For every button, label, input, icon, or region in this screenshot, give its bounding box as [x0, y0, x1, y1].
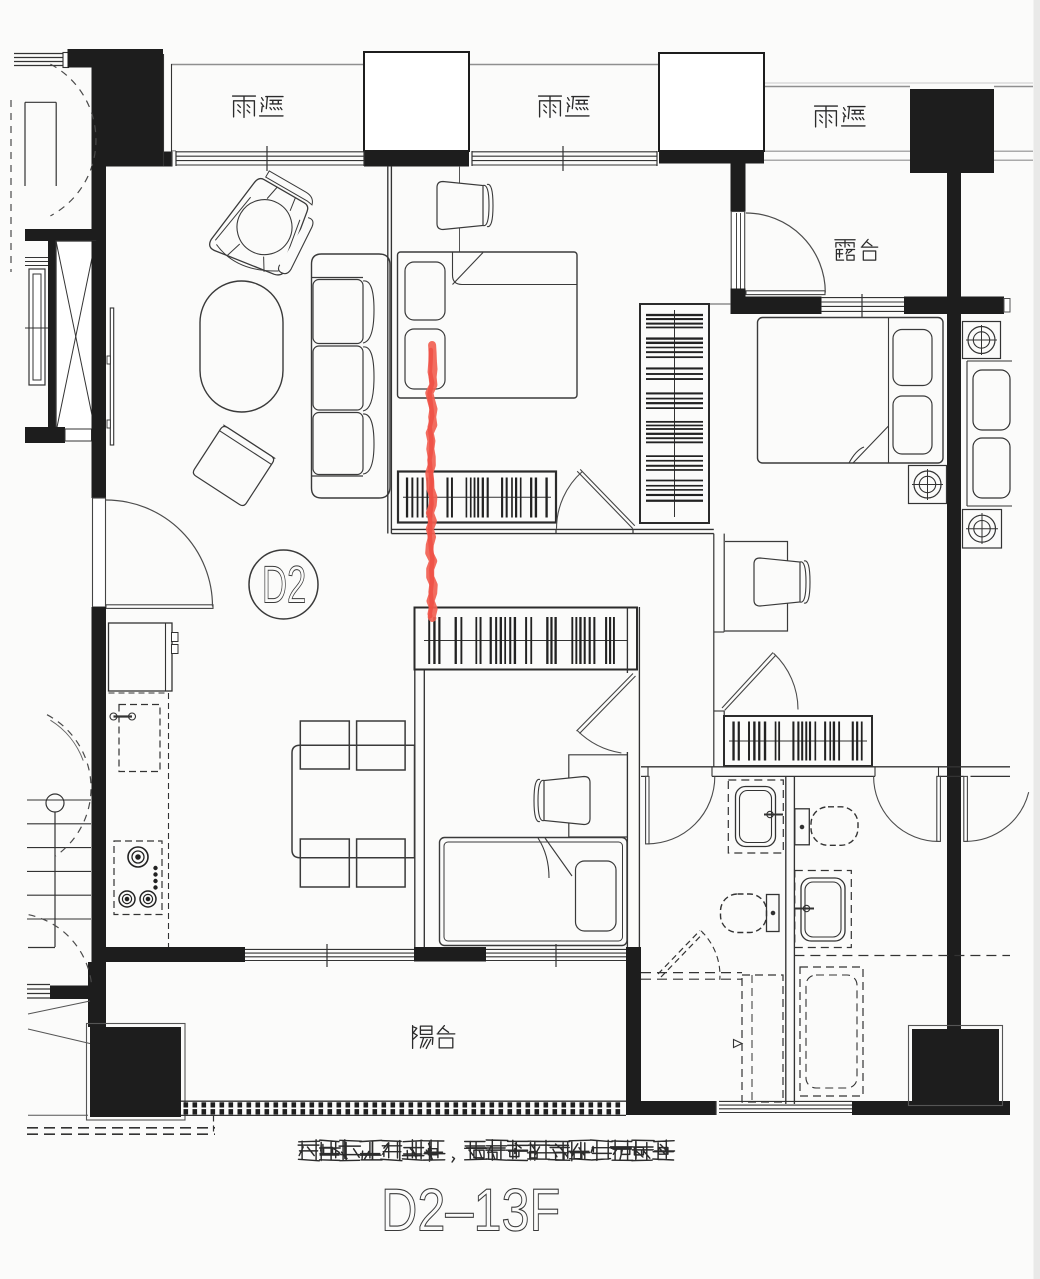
svg-text:D2–13F: D2–13F [381, 1177, 560, 1244]
svg-text:D2: D2 [262, 556, 306, 615]
